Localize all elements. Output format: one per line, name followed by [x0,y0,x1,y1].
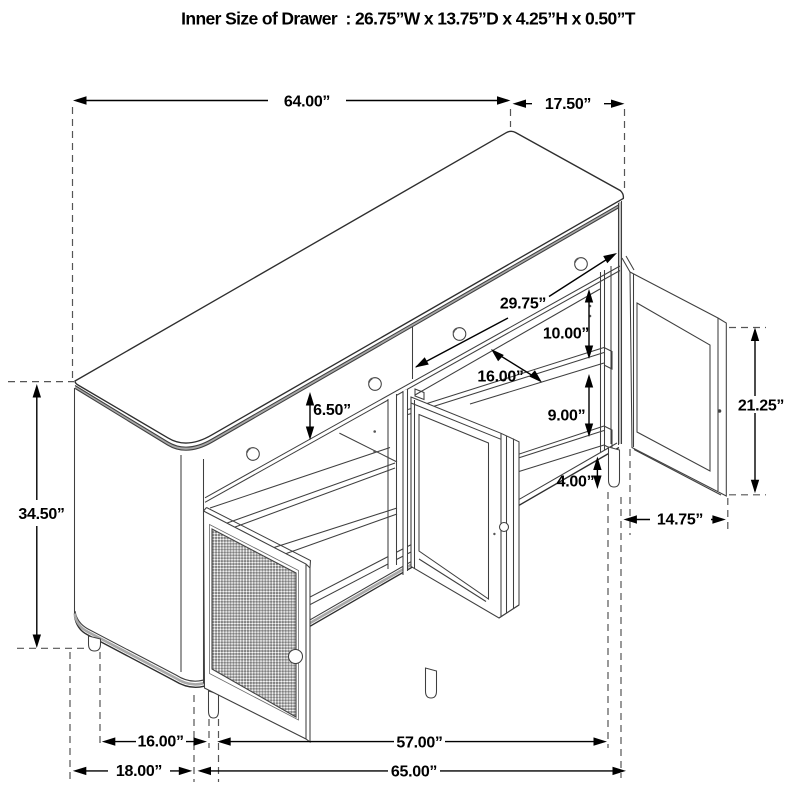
svg-text:64.00”: 64.00” [284,94,330,111]
svg-text:57.00”: 57.00” [396,735,442,752]
svg-text:6.50”: 6.50” [313,402,351,419]
svg-text:16.00”: 16.00” [137,734,183,751]
svg-text:14.75”: 14.75” [657,512,703,529]
svg-text:4.00”: 4.00” [557,474,595,491]
svg-text:29.75”: 29.75” [500,296,546,313]
svg-text:34.50”: 34.50” [18,506,64,523]
svg-text:21.25”: 21.25” [738,398,784,415]
svg-text:10.00”: 10.00” [543,326,589,343]
svg-text:Inner Size of Drawer : 26.75”: Inner Size of Drawer : 26.75”W x 13.75”D… [181,9,636,29]
svg-text:16.00”: 16.00” [477,369,523,386]
svg-text:65.00”: 65.00” [391,764,437,781]
svg-text:17.50”: 17.50” [545,96,591,113]
svg-text:18.00”: 18.00” [116,763,162,780]
svg-text:9.00”: 9.00” [548,408,586,425]
